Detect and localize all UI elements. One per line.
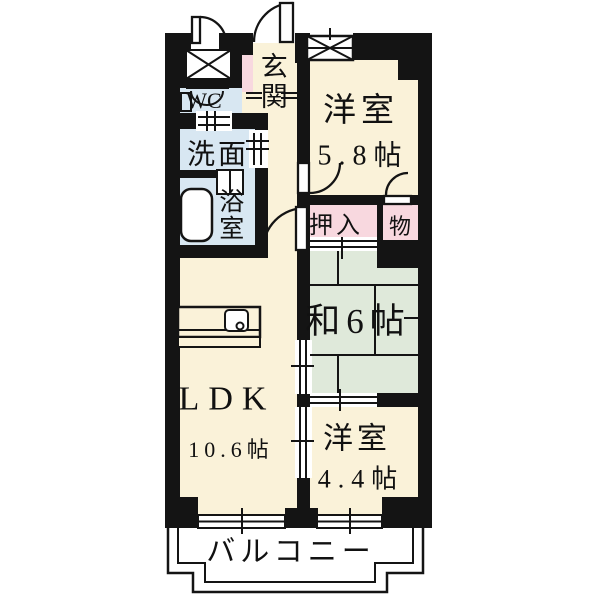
floorplan: 玄関 WC 洗面 浴室 洋室 5.8帖 押入 物 和6帖 LDK 10.6帖 洋… xyxy=(0,0,600,600)
hallway-floor xyxy=(268,113,297,205)
western-room1-size: 5.8帖 xyxy=(317,143,408,172)
bathtub-icon xyxy=(181,189,212,241)
japanese-room-label: 和6帖 xyxy=(305,304,411,340)
ldk-label: LDK xyxy=(179,383,276,418)
left-outer-wall xyxy=(165,33,180,528)
floorplan-drawing xyxy=(0,0,600,600)
wc-label: WC xyxy=(186,90,221,112)
kitchen-counter-icon xyxy=(178,307,260,347)
ldk-size: 10.6帖 xyxy=(188,439,274,461)
bathroom-label: 浴室 xyxy=(216,188,242,242)
drain-icon xyxy=(237,323,244,330)
western-room1-label: 洋室 xyxy=(323,95,399,129)
lattice-window xyxy=(307,28,353,60)
storage-label: 物 xyxy=(389,216,411,238)
genkan-label: 玄関 xyxy=(257,52,285,112)
western-room2-size: 4.4帖 xyxy=(318,467,405,494)
western-room2-label: 洋室 xyxy=(323,425,391,456)
washroom-label: 洗面 xyxy=(187,142,249,171)
meter-box-icon xyxy=(186,50,231,79)
right-outer-wall xyxy=(418,55,432,528)
balcony-label: バルコニー xyxy=(206,538,375,568)
closet-label: 押入 xyxy=(309,214,363,238)
